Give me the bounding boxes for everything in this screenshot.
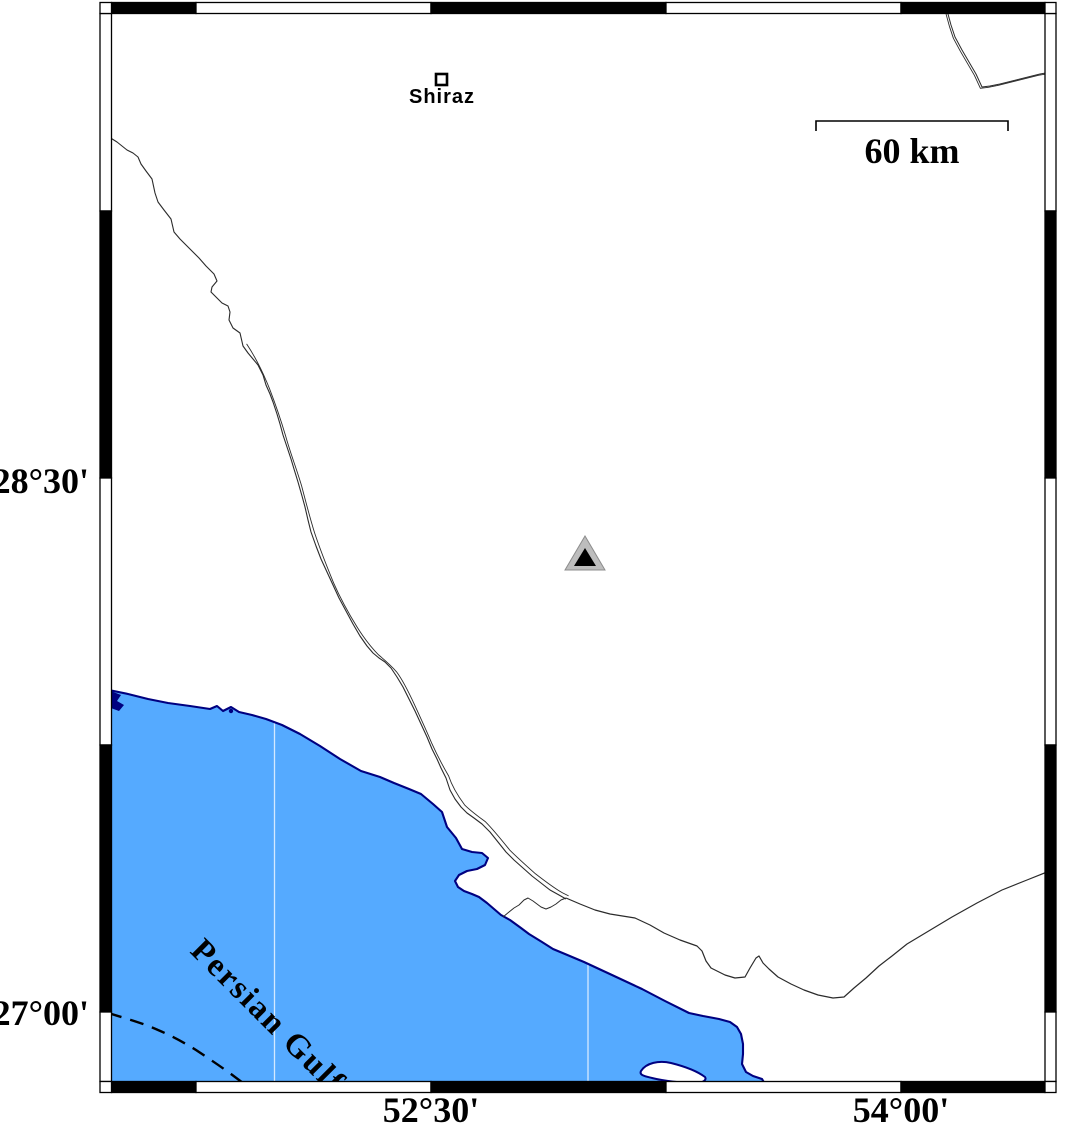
frame-segment bbox=[1045, 14, 1056, 212]
frame-segment bbox=[100, 1012, 112, 1082]
frame-segment bbox=[1045, 1012, 1056, 1082]
map-figure: Persian Gulf Shiraz 60 km bbox=[0, 0, 1066, 1128]
axis-label-lat-2830: 28°30' bbox=[0, 461, 89, 501]
frame-segment bbox=[100, 745, 112, 1012]
frame-segment bbox=[901, 3, 1045, 14]
axis-label-lon-5230: 52°30' bbox=[383, 1090, 479, 1128]
frame-segment bbox=[112, 1082, 197, 1093]
axis-label-lat-2700: 27°00' bbox=[0, 993, 89, 1033]
frame-segment bbox=[1045, 211, 1056, 478]
border-line-northeast-offset bbox=[943, 3, 1056, 88]
frame-corner bbox=[1045, 1082, 1056, 1093]
border-line-southeast bbox=[566, 868, 1058, 998]
coast-detail-dot bbox=[229, 709, 233, 713]
frame-segment bbox=[196, 3, 431, 14]
city-marker-square-icon bbox=[436, 74, 447, 85]
map-canvas: Persian Gulf Shiraz 60 km bbox=[0, 0, 1066, 1128]
border-branch bbox=[503, 898, 566, 917]
frame-segment bbox=[431, 3, 666, 14]
frame-segment bbox=[112, 3, 197, 14]
scale-bar bbox=[816, 121, 1008, 131]
scale-bar-label: 60 km bbox=[864, 131, 959, 171]
sea-fill bbox=[100, 688, 765, 1092]
frame-segment bbox=[100, 211, 112, 478]
frame-corner bbox=[100, 3, 112, 14]
frame-segment bbox=[666, 3, 901, 14]
frame-segment bbox=[1045, 478, 1056, 745]
frame-segment bbox=[100, 14, 112, 212]
map-content: Persian Gulf Shiraz 60 km bbox=[100, 2, 1058, 1101]
frame-segment bbox=[100, 478, 112, 745]
city-label: Shiraz bbox=[409, 86, 475, 108]
frame-corner bbox=[1045, 3, 1056, 14]
frame-segment bbox=[1045, 745, 1056, 1012]
axis-label-lon-5400: 54°00' bbox=[853, 1090, 949, 1128]
frame-corner bbox=[100, 1082, 112, 1093]
border-line-northeast bbox=[945, 2, 1058, 87]
